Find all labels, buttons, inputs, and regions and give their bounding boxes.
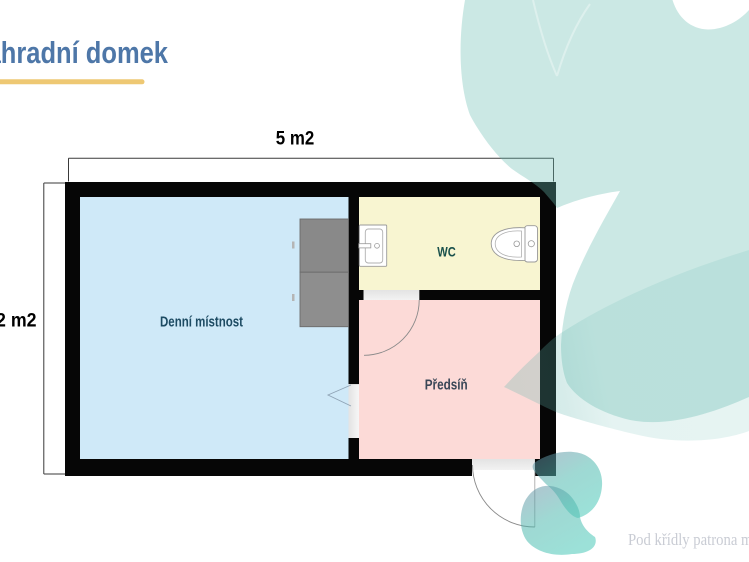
svg-text:5 m2: 5 m2 — [276, 129, 315, 150]
svg-text:Předsíň: Předsíň — [425, 378, 468, 394]
svg-text:Denní místnost: Denní místnost — [160, 315, 243, 331]
svg-text:Pod křídly patrona mě: Pod křídly patrona mě — [628, 530, 749, 549]
svg-text:Zahradní domek: Zahradní domek — [0, 35, 169, 70]
svg-text:WC: WC — [437, 243, 456, 259]
svg-text:2 m2: 2 m2 — [0, 311, 37, 332]
